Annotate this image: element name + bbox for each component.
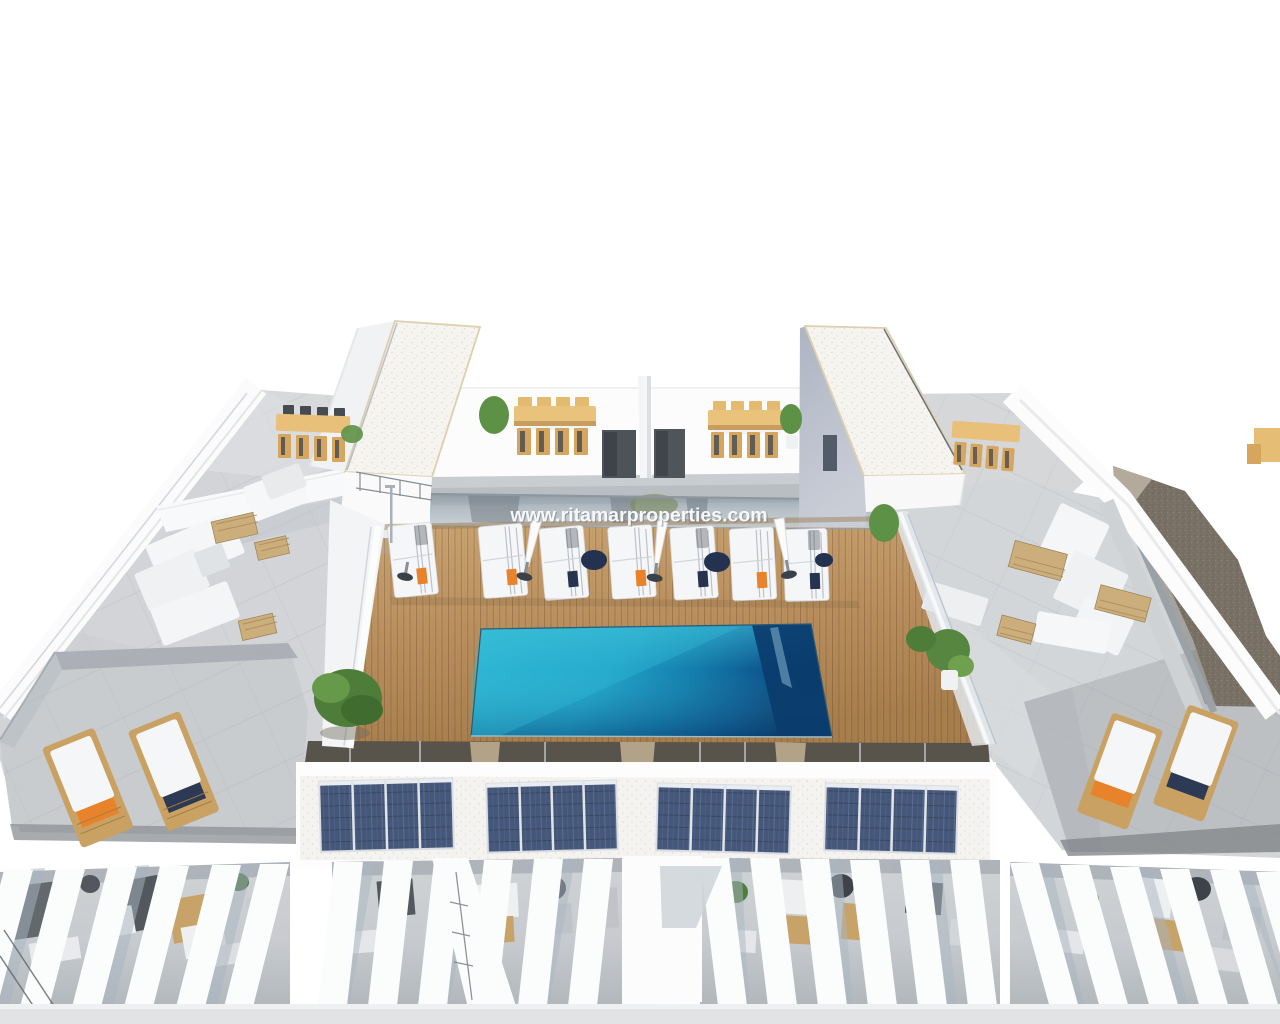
svg-text:www.ritamarproperties.com: www.ritamarproperties.com [509,505,767,527]
